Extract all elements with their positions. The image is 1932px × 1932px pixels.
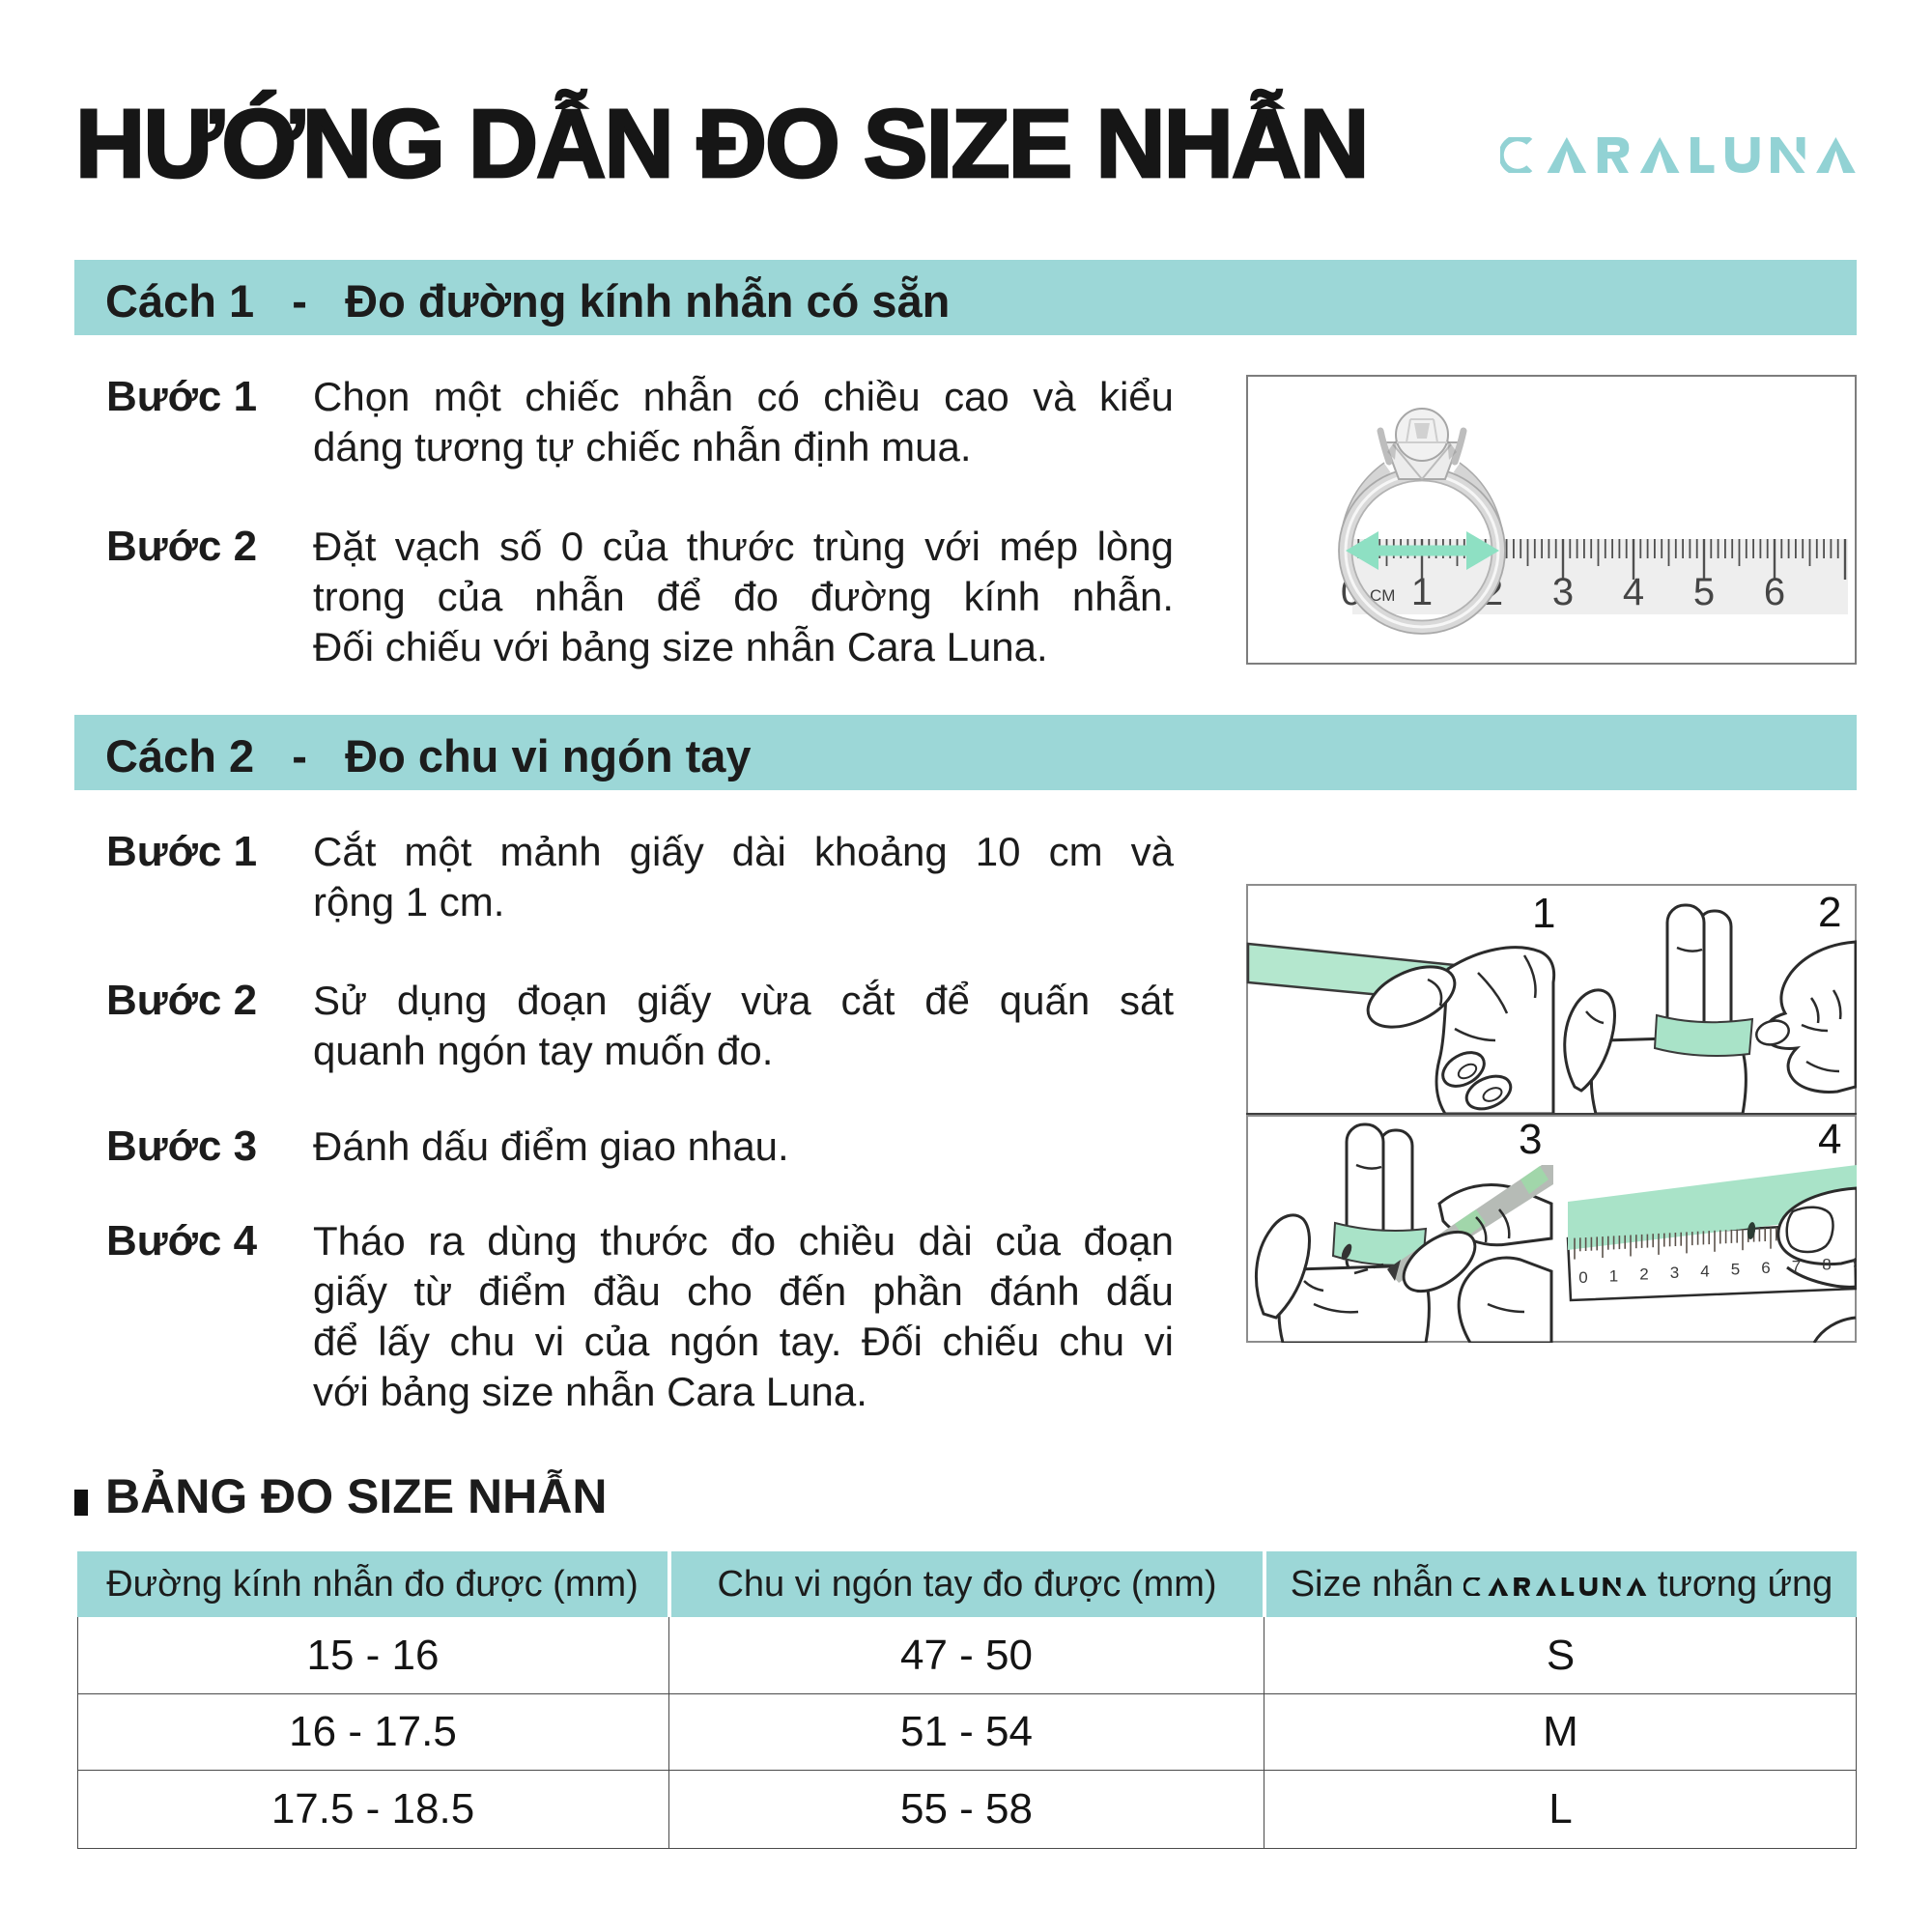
svg-text:3: 3 <box>1670 1264 1679 1282</box>
svg-text:5: 5 <box>1731 1261 1740 1279</box>
svg-text:6: 6 <box>1761 1259 1770 1277</box>
svg-text:2: 2 <box>1639 1265 1648 1284</box>
svg-text:3: 3 <box>1552 571 1574 613</box>
svg-text:3: 3 <box>1519 1116 1542 1163</box>
svg-text:9: 9 <box>1853 1254 1857 1272</box>
svg-text:4: 4 <box>1818 1116 1841 1163</box>
svg-text:6: 6 <box>1764 571 1785 613</box>
svg-text:8: 8 <box>1822 1256 1831 1274</box>
svg-text:5: 5 <box>1693 571 1715 613</box>
svg-text:7: 7 <box>1792 1257 1801 1275</box>
svg-text:1: 1 <box>1411 571 1433 613</box>
svg-text:4: 4 <box>1700 1262 1709 1280</box>
svg-text:1: 1 <box>1609 1266 1618 1285</box>
svg-text:0: 0 <box>1578 1268 1587 1287</box>
svg-text:4: 4 <box>1623 571 1644 613</box>
svg-text:1: 1 <box>1532 890 1555 937</box>
svg-text:2: 2 <box>1818 889 1841 936</box>
